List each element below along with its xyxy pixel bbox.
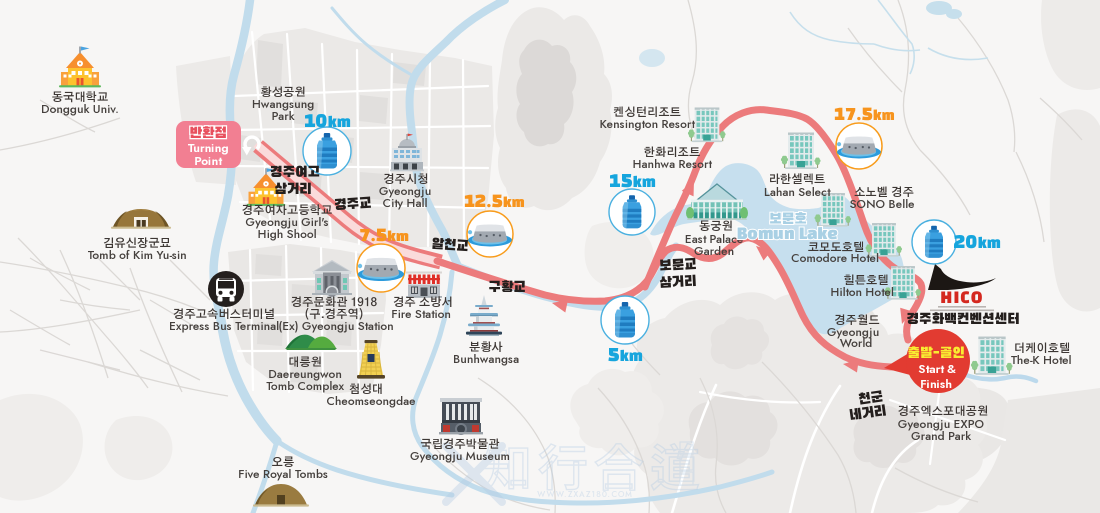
svg-text:보문교: 보문교 xyxy=(659,257,697,275)
svg-text:경주교: 경주교 xyxy=(334,196,372,215)
svg-text:Grand Park: Grand Park xyxy=(911,427,971,445)
svg-text:삼거리: 삼거리 xyxy=(659,274,697,292)
svg-text:Bomun Lake: Bomun Lake xyxy=(737,227,838,243)
svg-text:Five Royal Tombs: Five Royal Tombs xyxy=(238,465,328,483)
svg-text:Lahan Select: Lahan Select xyxy=(764,183,830,201)
svg-text:경주여고: 경주여고 xyxy=(270,165,320,181)
svg-text:Kensington Resort: Kensington Resort xyxy=(599,115,694,133)
svg-text:경주문화관 1918: 경주문화관 1918 xyxy=(291,296,378,309)
svg-text:Dongguk Univ.: Dongguk Univ. xyxy=(41,100,119,118)
svg-text:Comodore Hotel: Comodore Hotel xyxy=(791,249,879,267)
svg-text:Tomb of Kim Yu-sin: Tomb of Kim Yu-sin xyxy=(87,246,187,264)
svg-text:World: World xyxy=(840,334,873,352)
svg-text:경주화백컨벤션센터: 경주화백컨벤션센터 xyxy=(906,312,1019,328)
svg-text:HICO: HICO xyxy=(940,292,983,307)
svg-text:Gyeongju Museum: Gyeongju Museum xyxy=(410,447,510,465)
svg-text:The-K Hotel: The-K Hotel xyxy=(1011,351,1072,369)
svg-text:구황교: 구황교 xyxy=(488,280,525,296)
svg-text:Hanhwa Resort: Hanhwa Resort xyxy=(632,155,711,173)
svg-text:Bunhwangsa: Bunhwangsa xyxy=(453,350,519,368)
svg-text:Garden: Garden xyxy=(694,242,735,260)
svg-text:Park: Park xyxy=(271,107,294,125)
svg-text:(Ex) Gyeongju Station: (Ex) Gyeongju Station xyxy=(278,317,394,335)
svg-text:보문호: 보문호 xyxy=(769,212,807,228)
svg-text:High Shool: High Shool xyxy=(258,225,317,243)
svg-text:WWW.ZXAZ180.COM: WWW.ZXAZ180.COM xyxy=(537,489,633,501)
svg-text:Hilton Hotel: Hilton Hotel xyxy=(830,283,893,301)
svg-text:Point: Point xyxy=(194,152,222,170)
svg-text:SONO Belle: SONO Belle xyxy=(849,195,915,213)
svg-text:Finish: Finish xyxy=(920,375,952,393)
svg-text:City Hall: City Hall xyxy=(383,194,428,212)
svg-text:삼거리: 삼거리 xyxy=(274,182,311,198)
svg-text:Express Bus Terminal: Express Bus Terminal xyxy=(169,317,279,335)
svg-text:알천교: 알천교 xyxy=(431,237,469,256)
svg-text:Fire Station: Fire Station xyxy=(391,305,451,323)
svg-text:Cheomseongdae: Cheomseongdae xyxy=(326,392,416,410)
